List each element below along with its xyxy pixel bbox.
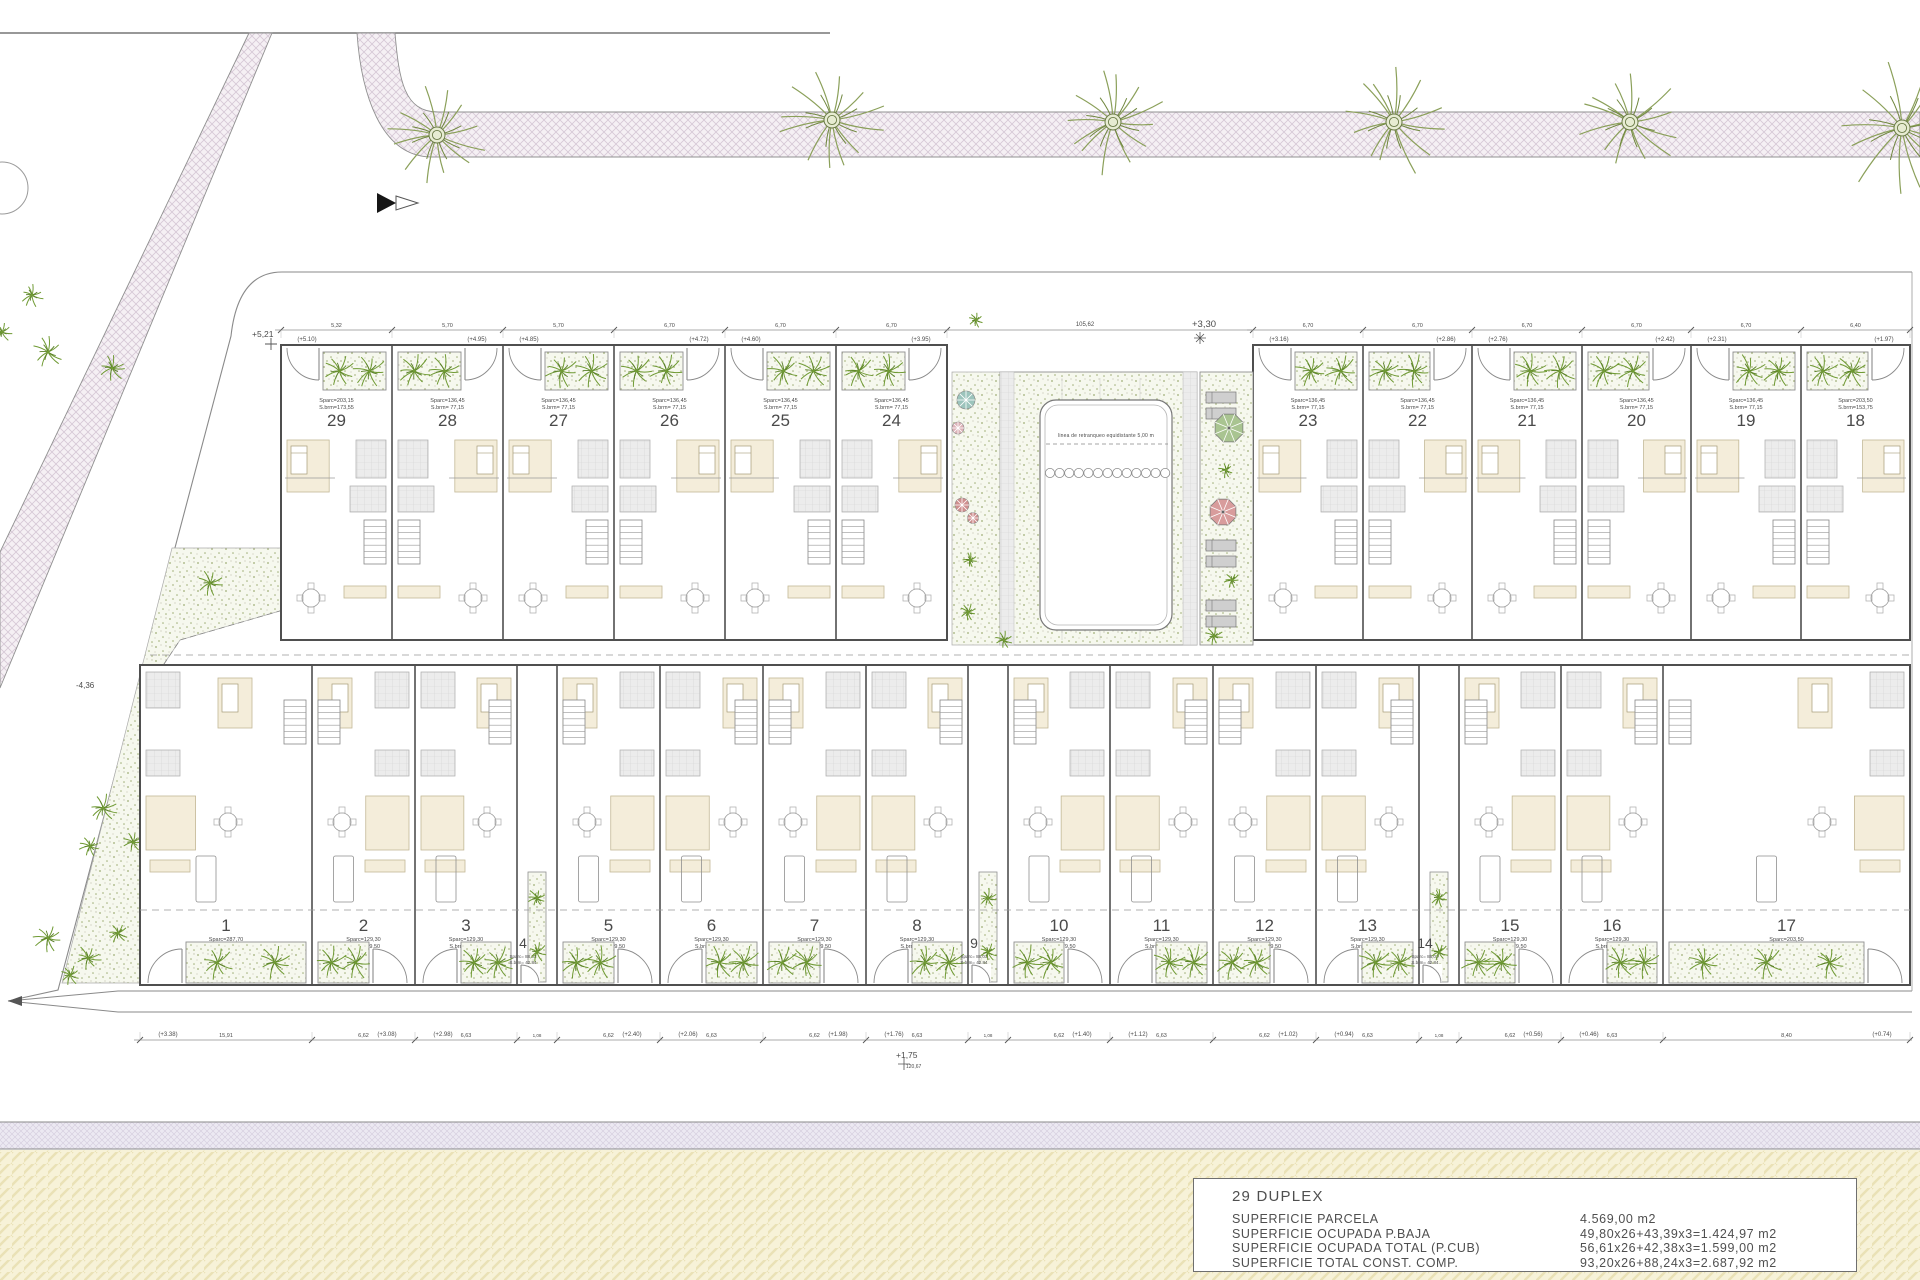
svg-text:18: 18 — [1846, 411, 1865, 430]
sun-lounger — [1206, 540, 1236, 551]
svg-text:1,08: 1,08 — [984, 1033, 993, 1038]
svg-text:20: 20 — [1627, 411, 1646, 430]
garden-planter — [1156, 942, 1207, 983]
svg-text:21: 21 — [1518, 411, 1537, 430]
svg-text:6,70: 6,70 — [664, 323, 675, 329]
title-block-value: 49,80x26+43,39x3=1.424,97 m2 — [1580, 1227, 1777, 1242]
svg-text:(+3.08): (+3.08) — [377, 1032, 396, 1038]
svg-text:(+2.40): (+2.40) — [622, 1032, 641, 1038]
garden-planter — [767, 352, 830, 390]
svg-text:(+0.56): (+0.56) — [1523, 1032, 1542, 1038]
title-block-row: SUPERFICIE TOTAL CONST. COMP. 93,20x26+8… — [1232, 1256, 1856, 1271]
svg-text:17: 17 — [1777, 916, 1796, 935]
svg-text:Sparc=136,45: Sparc=136,45 — [430, 398, 464, 404]
sun-lounger — [1206, 616, 1236, 627]
garden-planter — [323, 352, 386, 390]
svg-text:(+2.76): (+2.76) — [1488, 337, 1507, 343]
svg-text:Sparc=136,45: Sparc=136,45 — [763, 398, 797, 404]
svg-text:19: 19 — [1737, 411, 1756, 430]
svg-text:1,08: 1,08 — [1435, 1033, 1444, 1038]
garden-planter — [461, 942, 511, 983]
title-block-label: SUPERFICIE OCUPADA P.BAJA — [1232, 1227, 1580, 1242]
svg-text:6,70: 6,70 — [1522, 323, 1533, 329]
north-arrow-icon — [377, 193, 396, 213]
svg-text:4: 4 — [519, 935, 527, 951]
garden-planter — [1219, 942, 1270, 983]
garden-planter — [1369, 352, 1430, 390]
svg-text:5,70: 5,70 — [553, 323, 564, 329]
svg-text:13: 13 — [1358, 916, 1377, 935]
svg-text:8,40: 8,40 — [1781, 1033, 1792, 1039]
svg-text:Sparc= 88,03: Sparc= 88,03 — [961, 954, 988, 959]
svg-text:6,63: 6,63 — [706, 1033, 717, 1039]
svg-text:6,63: 6,63 — [912, 1033, 923, 1039]
svg-text:8: 8 — [912, 916, 921, 935]
svg-text:Sparc=136,45: Sparc=136,45 — [874, 398, 908, 404]
svg-text:Sparc=136,45: Sparc=136,45 — [541, 398, 575, 404]
svg-text:10: 10 — [1050, 916, 1069, 935]
svg-text:(+2.31): (+2.31) — [1707, 337, 1726, 343]
svg-text:5,32: 5,32 — [331, 323, 342, 329]
svg-text:(+5.10): (+5.10) — [297, 337, 316, 343]
svg-text:(+3.95): (+3.95) — [911, 337, 930, 343]
dim-bottom-total: 120,67 — [906, 1064, 922, 1070]
svg-text:(+1.40): (+1.40) — [1072, 1032, 1091, 1038]
plan-drawing: Sparc=203,15S.brm=173,5529(+5.10)Sparc=1… — [0, 0, 1920, 1280]
title-block-row: SUPERFICIE OCUPADA TOTAL (P.CUB) 56,61x2… — [1232, 1241, 1856, 1256]
svg-text:Sparc=203,15: Sparc=203,15 — [319, 398, 353, 404]
garden-planter — [1465, 942, 1515, 983]
svg-text:6,70: 6,70 — [1741, 323, 1752, 329]
svg-text:Sparc= 88,03: Sparc= 88,03 — [1412, 954, 1439, 959]
svg-text:6,62: 6,62 — [603, 1033, 614, 1039]
svg-text:Sparc=136,45: Sparc=136,45 — [652, 398, 686, 404]
sidewalk-strip — [0, 1122, 1920, 1149]
svg-text:16: 16 — [1603, 916, 1622, 935]
svg-text:(+4.95): (+4.95) — [467, 337, 486, 343]
svg-text:(+3.16): (+3.16) — [1269, 337, 1288, 343]
svg-text:Sparc=136,45: Sparc=136,45 — [1291, 398, 1325, 404]
svg-text:Sparc=136,45: Sparc=136,45 — [1619, 398, 1653, 404]
svg-text:5,70: 5,70 — [442, 323, 453, 329]
svg-text:29: 29 — [327, 411, 346, 430]
svg-text:(+0.74): (+0.74) — [1872, 1032, 1891, 1038]
svg-text:(+1.98): (+1.98) — [828, 1032, 847, 1038]
garden-planter — [186, 942, 306, 983]
svg-text:6,70: 6,70 — [1631, 323, 1642, 329]
svg-text:1: 1 — [221, 916, 230, 935]
svg-text:Sparc=136,45: Sparc=136,45 — [1729, 398, 1763, 404]
svg-text:6,70: 6,70 — [886, 323, 897, 329]
svg-text:6,63: 6,63 — [1156, 1033, 1167, 1039]
level-mark-bottom: +1,75 — [896, 1050, 918, 1060]
svg-text:(+3.38): (+3.38) — [158, 1032, 177, 1038]
svg-text:6,70: 6,70 — [1303, 323, 1314, 329]
level-mark-left: -4,36 — [76, 681, 95, 690]
svg-text:7: 7 — [810, 916, 819, 935]
title-block: 29 DUPLEX SUPERFICIE PARCELA 4.569,00 m2… — [1193, 1178, 1857, 1272]
site-plan-canvas: Sparc=203,15S.brm=173,5529(+5.10)Sparc=1… — [0, 0, 1920, 1280]
svg-text:(+1.97): (+1.97) — [1874, 337, 1893, 343]
svg-text:6,70: 6,70 — [1412, 323, 1423, 329]
svg-text:11: 11 — [1153, 916, 1171, 935]
svg-text:2: 2 — [359, 916, 368, 935]
svg-text:(+2.42): (+2.42) — [1655, 337, 1674, 343]
svg-text:(+4.60): (+4.60) — [741, 337, 760, 343]
title-block-value: 93,20x26+88,24x3=2.687,92 m2 — [1580, 1256, 1777, 1271]
svg-text:12: 12 — [1255, 916, 1274, 935]
sun-lounger — [1206, 600, 1236, 611]
svg-text:15: 15 — [1501, 916, 1520, 935]
svg-text:24: 24 — [882, 411, 901, 430]
svg-text:(+2.06): (+2.06) — [678, 1032, 697, 1038]
title-block-project: 29 DUPLEX — [1232, 1188, 1856, 1205]
sun-lounger — [1206, 392, 1236, 403]
svg-text:6,62: 6,62 — [358, 1033, 369, 1039]
svg-text:(+1.76): (+1.76) — [884, 1032, 903, 1038]
svg-text:(+4.72): (+4.72) — [689, 337, 708, 343]
svg-text:15,91: 15,91 — [219, 1033, 233, 1039]
svg-text:6,63: 6,63 — [461, 1033, 472, 1039]
svg-text:6,63: 6,63 — [1362, 1033, 1373, 1039]
title-block-row: SUPERFICIE OCUPADA P.BAJA 49,80x26+43,39… — [1232, 1227, 1856, 1242]
svg-text:6,62: 6,62 — [1505, 1033, 1516, 1039]
svg-text:(+0.94): (+0.94) — [1334, 1032, 1353, 1038]
title-block-label: SUPERFICIE TOTAL CONST. COMP. — [1232, 1256, 1580, 1271]
garden-planter — [1362, 942, 1413, 983]
svg-text:(+2.98): (+2.98) — [433, 1032, 452, 1038]
svg-text:Sparc=136,45: Sparc=136,45 — [1510, 398, 1544, 404]
svg-text:(+0.46): (+0.46) — [1579, 1032, 1598, 1038]
svg-text:25: 25 — [771, 411, 790, 430]
svg-text:9: 9 — [970, 935, 978, 951]
title-block-label: SUPERFICIE OCUPADA TOTAL (P.CUB) — [1232, 1241, 1580, 1256]
svg-text:6,62: 6,62 — [809, 1033, 820, 1039]
title-block-value: 4.569,00 m2 — [1580, 1212, 1656, 1227]
svg-text:6,63: 6,63 — [1607, 1033, 1618, 1039]
title-block-value: 56,61x26+42,38x3=1.599,00 m2 — [1580, 1241, 1777, 1256]
svg-text:(+1.12): (+1.12) — [1128, 1032, 1147, 1038]
sun-lounger — [1206, 556, 1236, 567]
svg-text:6: 6 — [707, 916, 716, 935]
svg-text:(+4.85): (+4.85) — [519, 337, 538, 343]
svg-text:3: 3 — [461, 916, 470, 935]
svg-text:(+2.86): (+2.86) — [1436, 337, 1455, 343]
svg-text:Sparc=203,50: Sparc=203,50 — [1838, 398, 1872, 404]
svg-text:Sparc=136,45: Sparc=136,45 — [1400, 398, 1434, 404]
garden-planter — [1733, 352, 1795, 390]
title-block-label: SUPERFICIE PARCELA — [1232, 1212, 1580, 1227]
svg-text:6,62: 6,62 — [1259, 1033, 1270, 1039]
svg-text:28: 28 — [438, 411, 457, 430]
level-mark-top-left: +5,21 — [252, 329, 274, 339]
level-mark-top-mid: +3,30 — [1192, 319, 1216, 330]
generated-plan-layer: Sparc=203,15S.brm=173,5529(+5.10)Sparc=1… — [0, 33, 1920, 1280]
svg-text:5: 5 — [604, 916, 613, 935]
top-road — [357, 33, 1920, 157]
dim-top-total: 105,62 — [1076, 322, 1095, 328]
svg-text:6,40: 6,40 — [1850, 323, 1861, 329]
svg-text:27: 27 — [549, 411, 568, 430]
svg-text:26: 26 — [660, 411, 679, 430]
title-block-row: SUPERFICIE PARCELA 4.569,00 m2 — [1232, 1212, 1856, 1227]
svg-text:(+1.02): (+1.02) — [1278, 1032, 1297, 1038]
svg-text:22: 22 — [1408, 411, 1427, 430]
svg-text:6,70: 6,70 — [775, 323, 786, 329]
svg-text:23: 23 — [1299, 411, 1318, 430]
svg-text:6,62: 6,62 — [1054, 1033, 1065, 1039]
pool-setback-note: linea de retranqueo equidistante 5,00 m — [1058, 433, 1154, 439]
svg-text:1,08: 1,08 — [533, 1033, 542, 1038]
